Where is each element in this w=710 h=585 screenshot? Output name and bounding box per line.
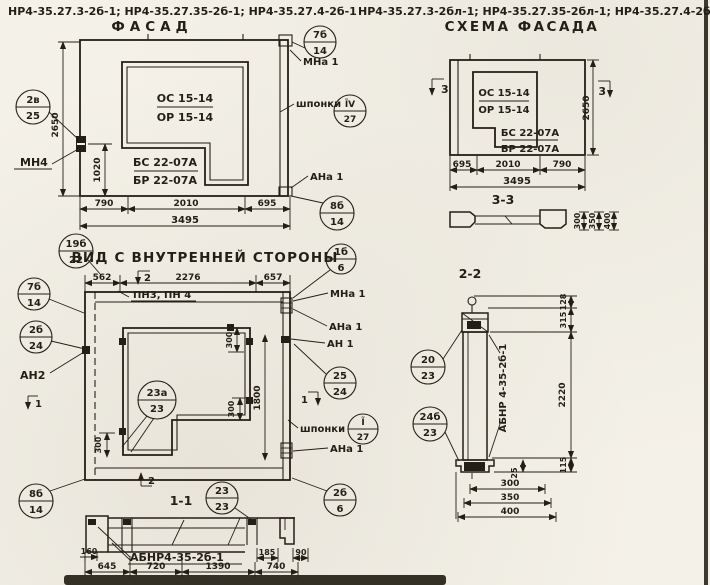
sec22-dim-400: 400 (501, 507, 520, 517)
flag-3-left: 3 (441, 83, 449, 96)
callout-bottom: 14 (27, 298, 41, 309)
callout-bottom: 14 (330, 217, 344, 228)
sec11-right-block (280, 518, 294, 544)
section-2-2: 2-2 АБНР 4-35-2б-1 20 23 24б 23 (411, 266, 577, 522)
flag-1-right: 1 (301, 395, 308, 406)
callout-top: 1б (334, 246, 348, 258)
scheme-dim-2010: 2010 (495, 160, 520, 170)
facade-window-mark-top: ОС 15-14 (157, 92, 214, 105)
callout-top: 7б (27, 281, 41, 293)
callout-bottom: 23 (423, 428, 437, 439)
callout-top: 19б (66, 238, 87, 250)
section-2-2-title: 2-2 (459, 266, 482, 281)
inner-view-title: ВИД С ВНУТРЕННЕЙ СТОРОНЫ (71, 249, 338, 266)
scheme-dim-total: 3495 (503, 176, 531, 187)
callout-bottom: 23 (215, 502, 229, 513)
callout-top: 23а (147, 388, 168, 399)
callout-top: Ĩ (361, 417, 365, 428)
callout-bottom: 24 (333, 387, 347, 398)
callout-top: 2б (29, 324, 43, 336)
callout-bottom: 6 (337, 504, 344, 515)
inner-an1-label: АН 1 (327, 339, 354, 350)
callout-top: 25 (333, 371, 347, 382)
sec33-dim-300: 300 (573, 212, 582, 229)
facade-dim-790: 790 (95, 199, 114, 209)
callout-top: 20 (421, 355, 435, 366)
facade-block-mark-bottom: БР 22-07А (133, 174, 197, 187)
scheme-block-mark-bottom: БР 22-07А (501, 144, 559, 155)
sec22-label: АБНР 4-35-2б-1 (497, 344, 509, 433)
scheme-dim-height: 2650 (582, 95, 592, 120)
callout-bottom: 25 (26, 111, 40, 122)
callout-bottom: 6 (338, 263, 345, 274)
facade-dim-total: 3495 (171, 215, 199, 226)
sec11-dim-90: 90 (295, 548, 307, 557)
callout-bottom: 14 (29, 505, 43, 516)
scan-edge-line (704, 0, 708, 585)
sec22-dim-128: 128 (559, 293, 568, 310)
sec22-dim-300: 300 (501, 479, 520, 489)
headers: НР4-35.27.3-2б-1; НР4-35.27.35-2б-1; НР4… (8, 5, 710, 35)
callout-top: 8б (29, 488, 43, 500)
callout-top: 8б (330, 200, 344, 212)
mn4-label: МН4 (20, 156, 48, 169)
sec11-dim-720: 720 (147, 562, 166, 572)
callout-top: 24б (420, 411, 441, 423)
flag-1-left: 1 (35, 399, 42, 410)
facade-drawing: ОС 15-14 ОР 15-14 БС 22-07А БР 22-07А 26… (14, 26, 366, 230)
callout-bottom: 14 (313, 46, 327, 57)
scheme-title: СХЕМА ФАСАДА (445, 19, 600, 35)
section-1-1: 1-1 23 23 АБНР4-35-2б-1 160 (80, 482, 308, 577)
inner-dim-300b: 300 (227, 400, 236, 417)
callout-bottom: 23 (421, 371, 435, 382)
scheme-dim-695: 695 (453, 160, 472, 170)
sec22-dim-315: 315 (559, 311, 568, 328)
sec33-dim-350: 350 (588, 212, 597, 229)
sec11-dim-645: 645 (98, 562, 117, 572)
scheme-drawing: ОС 15-14 ОР 15-14 БС 22-07А БР 22-07А 3 … (432, 54, 619, 230)
an1-anchor (281, 336, 290, 343)
inner-dim-1800: 1800 (253, 385, 263, 410)
callout-top: ĨV (345, 99, 355, 110)
sec33-dim-400: 400 (603, 212, 612, 229)
facade-title: ФАСАД (111, 19, 192, 35)
callout-bottom: 23 (150, 404, 164, 415)
section-1-1-title: 1-1 (170, 493, 193, 508)
inner-dim-657: 657 (264, 273, 283, 283)
facade-dim-height: 2650 (51, 112, 61, 137)
left-codes: НР4-35.27.3-2б-1; НР4-35.27.35-2б-1; НР4… (8, 5, 357, 18)
an2-label: АН2 (20, 369, 45, 382)
callout-bottom: 27 (344, 115, 357, 125)
callout-top: 2б (333, 487, 347, 499)
section-3-3-right-lug (540, 210, 566, 228)
inner-dim-300a: 300 (225, 331, 234, 348)
inner-dim-562: 562 (93, 273, 112, 283)
scheme-window-mark-top: ОС 15-14 (478, 88, 529, 99)
sec11-dim-185: 185 (259, 548, 276, 557)
flag-3-right: 3 (598, 85, 606, 98)
facade-dim-695: 695 (258, 199, 277, 209)
inner-ana1b-label: АНа 1 (330, 444, 363, 455)
scheme-block-mark-top: БС 22-07А (501, 128, 559, 139)
callout-top: 2в (26, 95, 39, 106)
sec22-panel-bar (463, 332, 487, 460)
facade-dim-1020: 1020 (93, 157, 103, 182)
callout-bottom: 24 (29, 341, 43, 352)
blueprint-svg: НР4-35.27.3-2б-1; НР4-35.27.35-2б-1; НР4… (0, 0, 710, 585)
pn-label: ПН3, ПН 4 (133, 290, 191, 301)
scheme-dim-790: 790 (553, 160, 572, 170)
inner-shponki-label: шпонки (300, 424, 345, 435)
facade-ana1-label: АНа 1 (310, 172, 343, 183)
facade-mna1-label: МНа 1 (303, 57, 339, 68)
flag-2-bottom: 2 (148, 476, 155, 487)
flag-2-top: 2 (144, 273, 151, 284)
inner-dim-2276: 2276 (175, 273, 200, 283)
inner-dim-300c: 300 (94, 436, 103, 453)
facade-dim-2010: 2010 (173, 199, 198, 209)
facade-block-mark-top: БС 22-07А (133, 156, 197, 169)
sec22-dim-350: 350 (501, 493, 520, 503)
callout-top: 23 (215, 486, 229, 497)
right-codes: НР4-35.27.3-2бл-1; НР4-35.27.35-2бл-1; Н… (358, 5, 710, 18)
sec11-dim-160: 160 (81, 547, 98, 556)
callout-top: 7б (313, 29, 327, 41)
inner-mna1-label: МНа 1 (330, 289, 366, 300)
facade-window-mark-bottom: ОР 15-14 (157, 111, 214, 124)
drawing-sheet: НР4-35.27.3-2б-1; НР4-35.27.35-2б-1; НР4… (0, 0, 710, 585)
sec22-dim-25: 25 (510, 467, 519, 479)
sec22-dim-2220: 2220 (558, 382, 568, 407)
sec11-dim-1390: 1390 (205, 562, 230, 572)
callout-bottom: 27 (357, 433, 370, 443)
sec11-dim-740: 740 (267, 562, 286, 572)
inner-view-drawing: 19б 22 ВИД С ВНУТРЕННЕЙ СТОРОНЫ 562 2276… (18, 234, 378, 518)
sec22-dim-115: 115 (559, 456, 568, 473)
section-3-3-title: 3-3 (492, 192, 515, 207)
scheme-window-mark-bottom: ОР 15-14 (478, 105, 529, 116)
inner-ana1-label: АНа 1 (329, 322, 362, 333)
section-3-3-left-lug (450, 212, 475, 227)
